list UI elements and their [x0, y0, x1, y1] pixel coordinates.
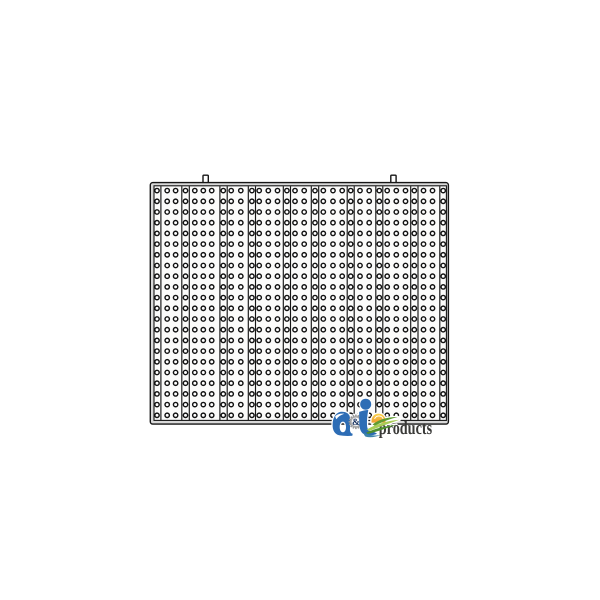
svg-text:products: products — [379, 418, 432, 439]
svg-text:&: & — [352, 418, 360, 428]
